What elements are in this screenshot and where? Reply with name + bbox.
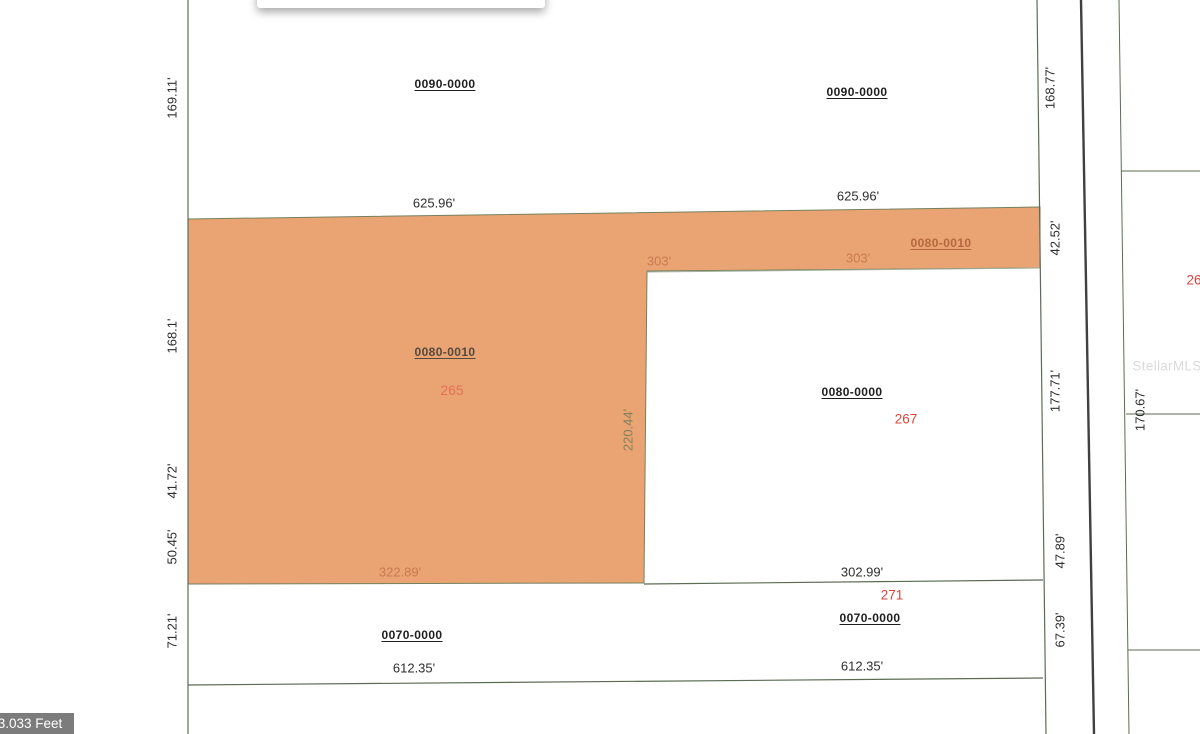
tooltip xyxy=(257,0,545,8)
road-line xyxy=(1081,0,1094,734)
scale-badge: 3.033 Feet xyxy=(0,713,74,734)
parcel-map xyxy=(0,0,1200,734)
parcel-0080-0010-shape[interactable] xyxy=(188,207,1040,584)
right-side-boundary-lines xyxy=(1119,0,1200,734)
